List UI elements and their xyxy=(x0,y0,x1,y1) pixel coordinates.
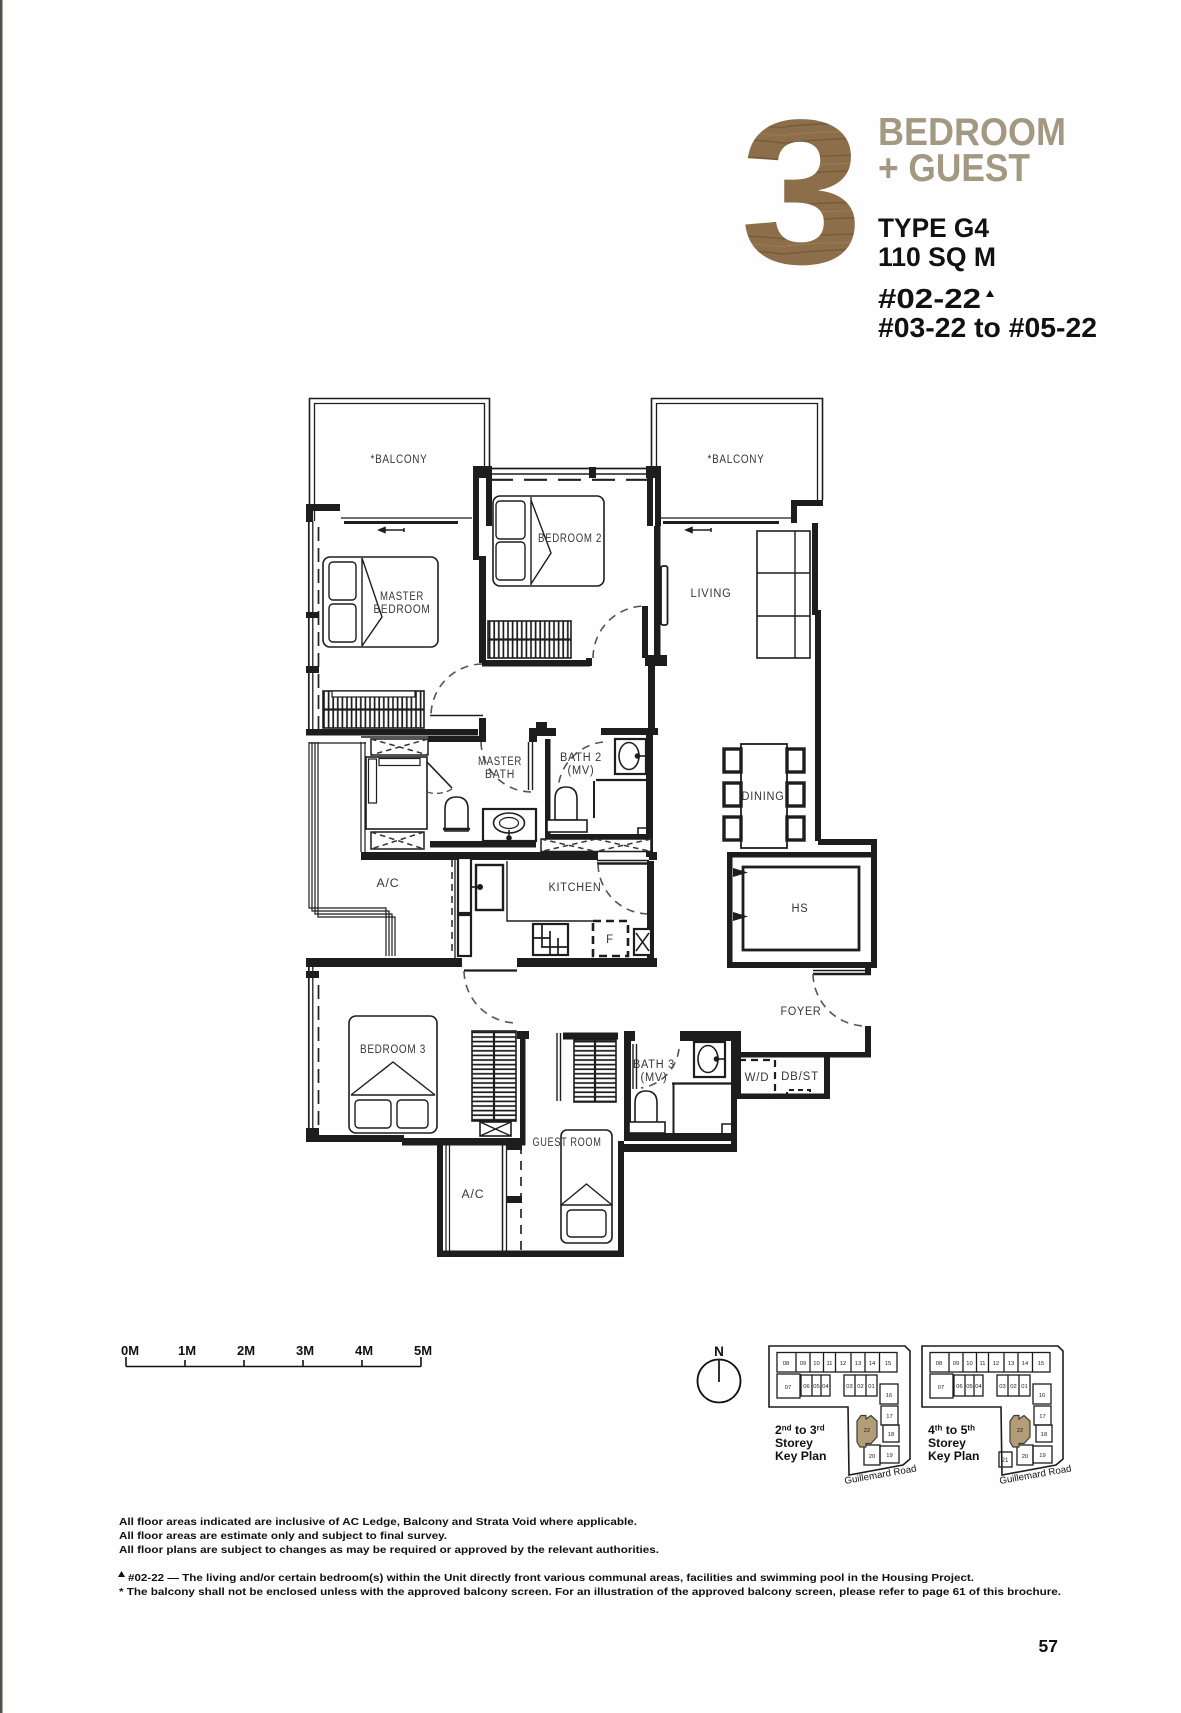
svg-text:12: 12 xyxy=(840,1361,846,1367)
svg-text:22: 22 xyxy=(864,1428,870,1434)
svg-text:2M: 2M xyxy=(237,1343,255,1358)
svg-text:06: 06 xyxy=(803,1384,809,1390)
svg-text:11: 11 xyxy=(826,1361,832,1367)
svg-text:19: 19 xyxy=(886,1453,892,1459)
svg-text:* The balcony shall not be enc: * The balcony shall not be enclosed unle… xyxy=(119,1587,1061,1598)
svg-text:13: 13 xyxy=(855,1361,861,1367)
svg-text:16: 16 xyxy=(886,1393,892,1399)
svg-text:All floor areas indicated are: All floor areas indicated are inclusive … xyxy=(119,1517,637,1528)
svg-text:3M: 3M xyxy=(296,1343,314,1358)
svg-text:15: 15 xyxy=(885,1361,891,1367)
svg-text:N: N xyxy=(714,1344,724,1359)
svg-text:08: 08 xyxy=(783,1361,789,1367)
svg-text:1M: 1M xyxy=(178,1343,196,1358)
svg-text:3: 3 xyxy=(740,78,863,308)
svg-text:05: 05 xyxy=(813,1384,819,1390)
svg-text:BEDROOM: BEDROOM xyxy=(374,604,431,616)
svg-text:#02-22: #02-22 xyxy=(878,283,981,314)
svg-text:A/C: A/C xyxy=(462,1189,485,1201)
svg-text:All floor plans are subject to: All floor plans are subject to changes a… xyxy=(119,1545,659,1556)
svg-text:TYPE G4: TYPE G4 xyxy=(878,213,989,243)
svg-text:09: 09 xyxy=(800,1361,806,1367)
svg-text:01: 01 xyxy=(868,1384,874,1390)
svg-text:14: 14 xyxy=(869,1361,876,1367)
svg-text:17: 17 xyxy=(886,1414,892,1420)
svg-text:KITCHEN: KITCHEN xyxy=(549,882,602,894)
svg-text:*BALCONY: *BALCONY xyxy=(371,454,428,466)
svg-text:0M: 0M xyxy=(121,1343,139,1358)
svg-text:HS: HS xyxy=(792,903,809,915)
svg-text:07: 07 xyxy=(785,1385,791,1391)
svg-text:21: 21 xyxy=(1002,1457,1009,1464)
svg-text:20: 20 xyxy=(869,1454,875,1460)
svg-text:(MV): (MV) xyxy=(641,1072,668,1084)
svg-text:18: 18 xyxy=(888,1432,894,1438)
svg-text:03: 03 xyxy=(846,1384,852,1390)
svg-text:#02-22 — The living and/or cer: #02-22 — The living and/or certain bedro… xyxy=(128,1573,974,1584)
svg-text:BATH: BATH xyxy=(485,769,515,781)
svg-text:GUEST ROOM: GUEST ROOM xyxy=(533,1137,602,1149)
svg-text:A/C: A/C xyxy=(377,878,400,890)
svg-text:BEDROOM 2: BEDROOM 2 xyxy=(538,533,602,545)
svg-text:BATH 2: BATH 2 xyxy=(560,752,602,764)
svg-text:MASTER: MASTER xyxy=(478,756,522,768)
svg-text:LIVING: LIVING xyxy=(691,588,732,600)
svg-text:W/D: W/D xyxy=(745,1072,770,1084)
svg-text:BATH 3: BATH 3 xyxy=(633,1059,675,1071)
svg-text:4M: 4M xyxy=(355,1343,373,1358)
svg-text:Key Plan: Key Plan xyxy=(775,1449,826,1463)
svg-text:+ GUEST: + GUEST xyxy=(878,147,1030,190)
svg-text:(MV): (MV) xyxy=(568,765,595,777)
svg-text:#03-22 to #05-22: #03-22 to #05-22 xyxy=(878,312,1097,343)
svg-text:Storey: Storey xyxy=(775,1436,813,1450)
svg-text:*BALCONY: *BALCONY xyxy=(708,454,765,466)
svg-text:BEDROOM 3: BEDROOM 3 xyxy=(360,1044,426,1056)
svg-text:10: 10 xyxy=(813,1361,819,1367)
svg-text:Key Plan: Key Plan xyxy=(928,1449,979,1463)
svg-text:F: F xyxy=(606,934,614,946)
svg-text:5M: 5M xyxy=(414,1343,432,1358)
svg-text:MASTER: MASTER xyxy=(380,591,424,603)
svg-text:Storey: Storey xyxy=(928,1436,966,1450)
svg-text:02: 02 xyxy=(857,1384,863,1390)
svg-text:57: 57 xyxy=(1039,1636,1058,1656)
svg-text:FOYER: FOYER xyxy=(781,1006,822,1018)
svg-text:DINING: DINING xyxy=(742,791,785,803)
svg-text:All floor areas are estimate o: All floor areas are estimate only and su… xyxy=(119,1531,447,1542)
svg-text:04: 04 xyxy=(822,1384,829,1390)
svg-text:110 SQ M: 110 SQ M xyxy=(878,242,996,272)
svg-text:DB/ST: DB/ST xyxy=(781,1071,819,1083)
